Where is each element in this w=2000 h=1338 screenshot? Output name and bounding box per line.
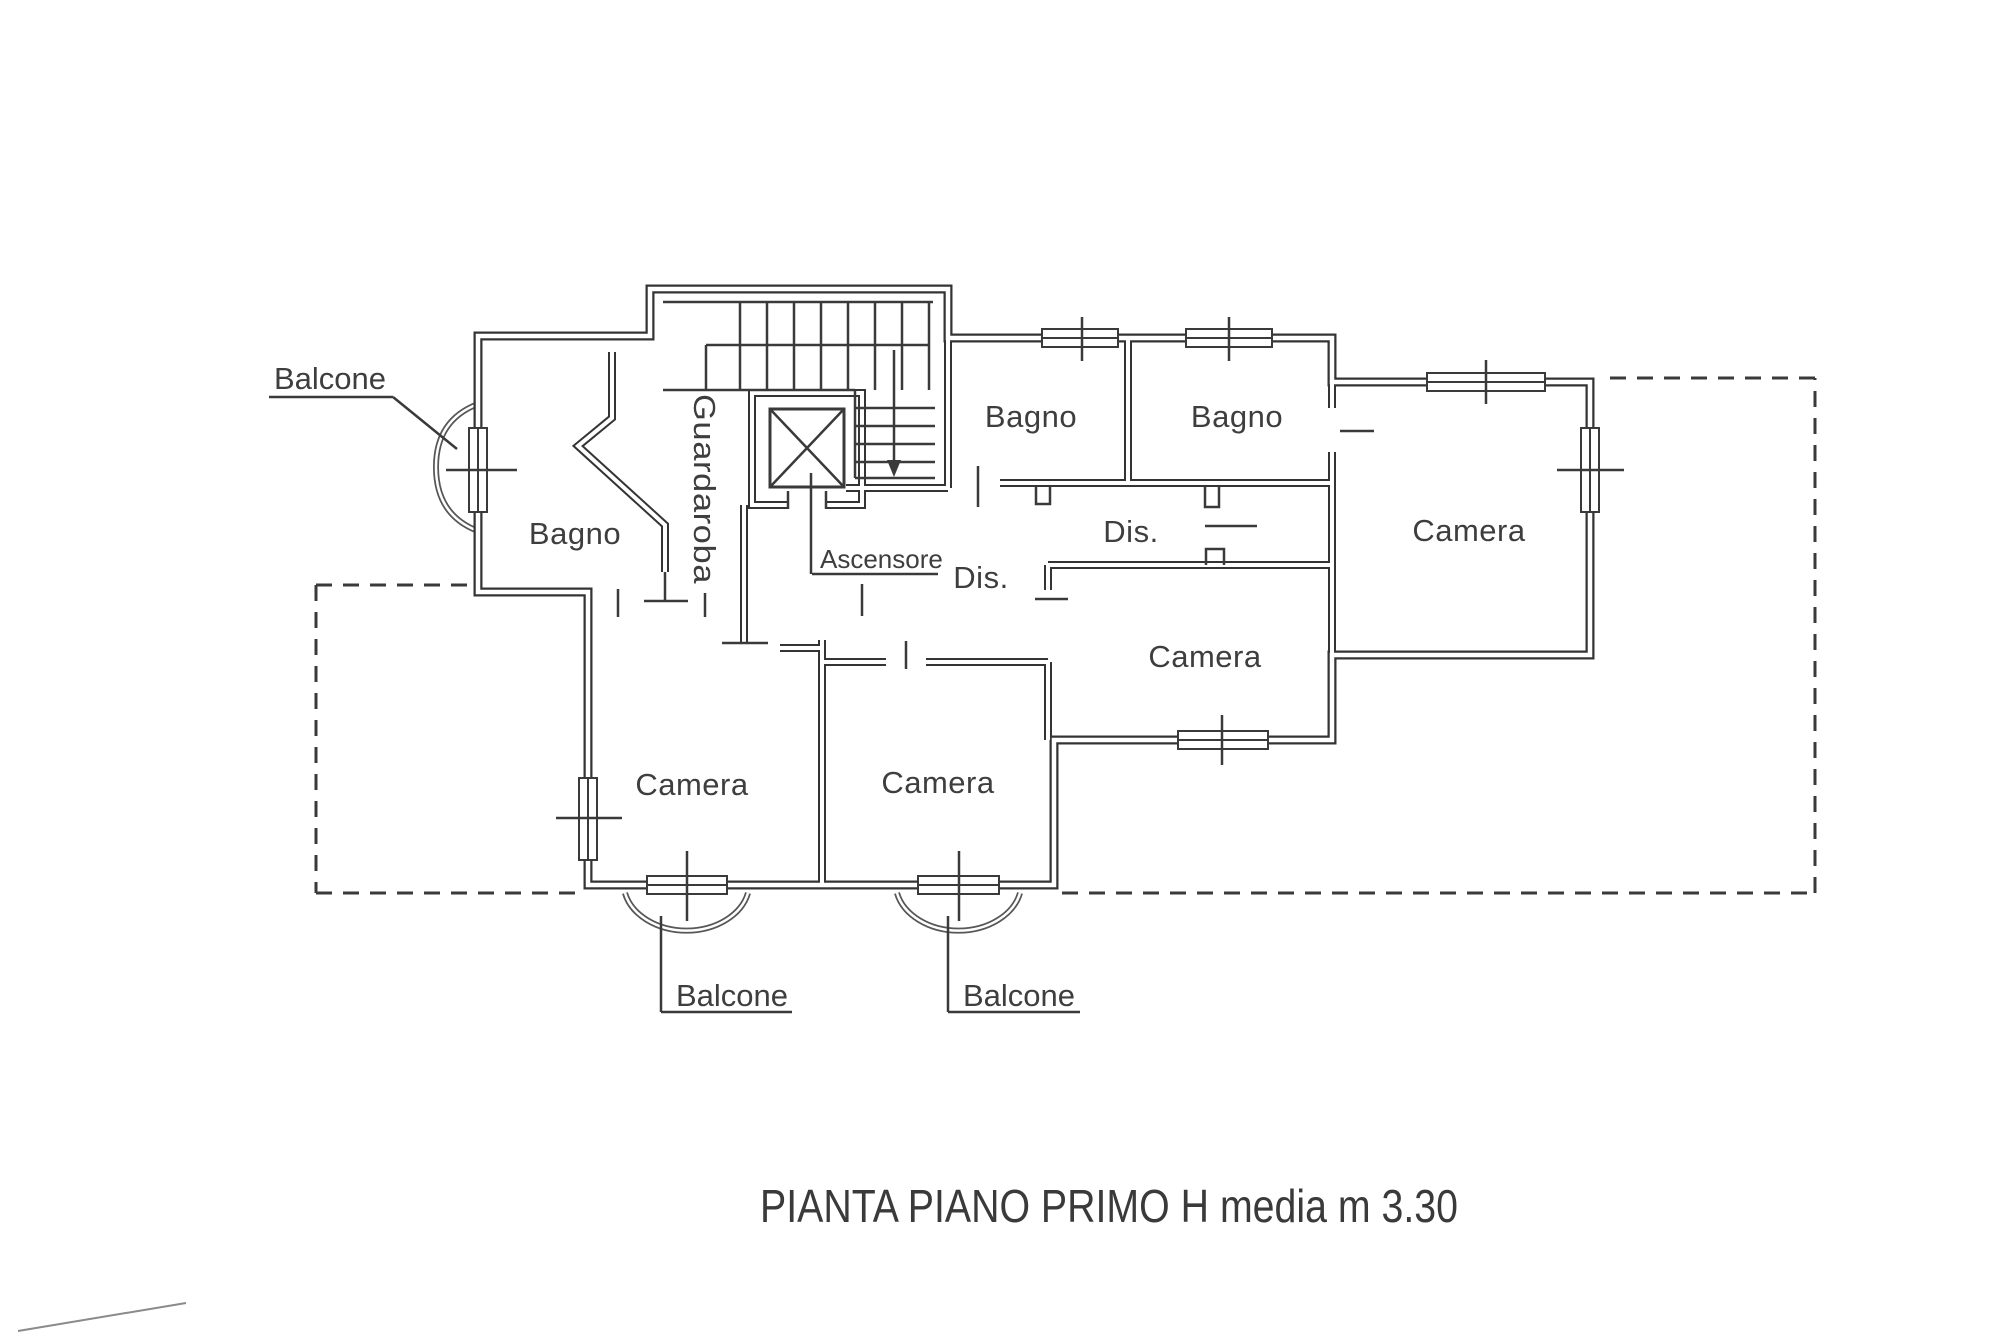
balcone-top-left-leader	[269, 397, 457, 449]
dis-lower-label: Dis.	[953, 560, 1008, 595]
camera-bottom-middle-label: Camera	[881, 765, 995, 800]
bagno-right-label: Bagno	[1191, 399, 1283, 434]
window-balcony-left	[446, 428, 517, 512]
dis-upper-label: Dis.	[1103, 514, 1158, 549]
guardaroba-label: Guardaroba	[687, 394, 722, 584]
scan-artifact-line	[18, 1303, 186, 1331]
camera-middle-label: Camera	[1148, 639, 1262, 674]
balcony-arcs	[436, 404, 1020, 931]
window-bagno-right-north	[1186, 317, 1272, 361]
window-balcony-bottom-left	[647, 851, 727, 921]
window-camera-middle-south	[1178, 715, 1268, 765]
scanned-floor-plan-page: Balcone Bagno Guardaroba Ascensore Bagno…	[0, 0, 2000, 1338]
window-balcony-bottom-middle	[918, 851, 999, 921]
ascensore-label: Ascensore	[820, 544, 943, 574]
camera-middle-north-wall	[1048, 565, 1332, 590]
stairs-down-arrow-icon	[887, 460, 901, 477]
room-labels: Balcone Bagno Guardaroba Ascensore Bagno…	[274, 361, 1526, 1013]
bagno-left-label: Bagno	[529, 516, 621, 551]
camera-party-wall	[780, 640, 822, 885]
camera-bottom-left-label: Camera	[635, 767, 749, 802]
window-camera-right-east	[1557, 428, 1624, 512]
bagno-middle-label: Bagno	[985, 399, 1077, 434]
window-camera-right-north	[1427, 360, 1545, 404]
plan-caption: PIANTA PIANO PRIMO H media m 3.30	[760, 1180, 1458, 1232]
door-marks	[618, 431, 1374, 669]
balcone-top-left-label: Balcone	[274, 361, 386, 396]
balcone-bottom-middle-label: Balcone	[963, 978, 1075, 1013]
floor-plan-drawing: Balcone Bagno Guardaroba Ascensore Bagno…	[0, 0, 2000, 1338]
elevator	[770, 409, 844, 509]
elevator-x-icon	[770, 409, 844, 487]
window-camera-bottom-left-west	[556, 778, 622, 860]
window-bagno-middle-north	[1042, 317, 1118, 361]
camera-right-label: Camera	[1412, 513, 1526, 548]
balcone-bottom-left-label: Balcone	[676, 978, 788, 1013]
